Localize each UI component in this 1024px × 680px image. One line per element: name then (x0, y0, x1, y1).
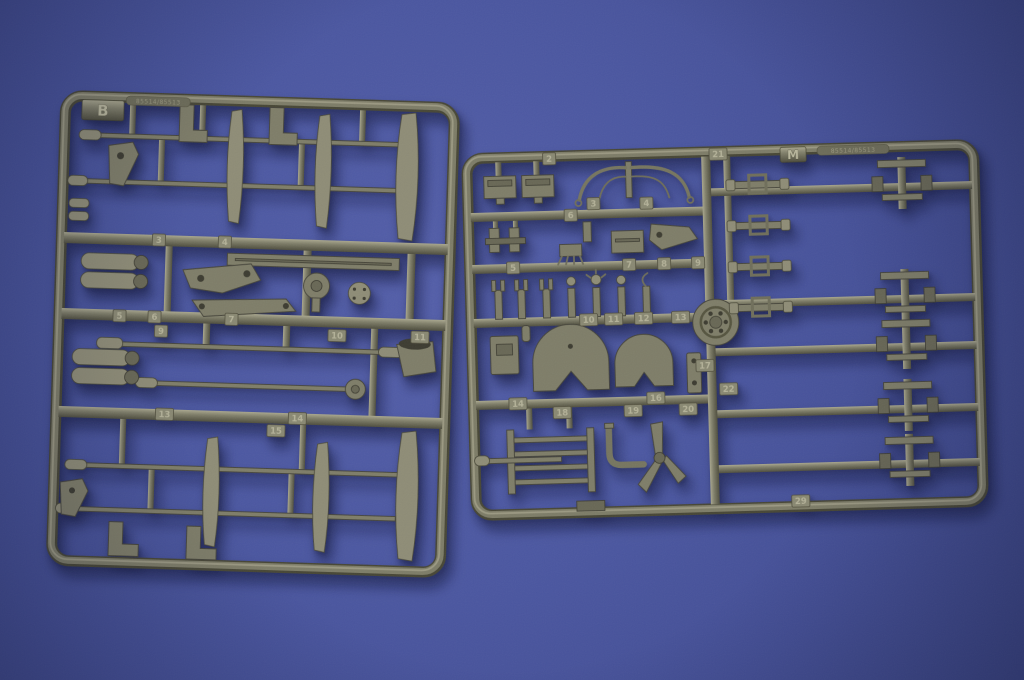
svg-text:19: 19 (627, 407, 639, 417)
linkage-rod-row (71, 328, 437, 402)
part-number-tag: 11 (604, 313, 622, 326)
part-number-tag: 2 (542, 153, 555, 166)
part-number-tag: 13 (671, 311, 689, 324)
part-number-tag: 6 (148, 311, 161, 324)
part-number-tag: 4 (218, 236, 231, 249)
sprue-b-letter-plate: B (82, 100, 125, 121)
mold-code-text: 85514/85513 (136, 98, 181, 106)
svg-text:15: 15 (270, 427, 282, 437)
part-number-tag: 15 (267, 424, 285, 437)
svg-text:6: 6 (568, 211, 574, 221)
part-number-tag: 13 (155, 408, 173, 421)
part-number-tag: 7 (225, 313, 238, 326)
svg-text:17: 17 (699, 362, 711, 372)
tripod-blade-part (637, 421, 687, 492)
part-number-tag: 14 (509, 398, 527, 411)
swing-arm-blade (394, 112, 420, 241)
recuperator-cylinders (80, 253, 148, 290)
plate-part (577, 500, 605, 511)
part-number-tag: 12 (634, 312, 652, 325)
svg-text:6: 6 (151, 313, 157, 323)
small-wheel-part (348, 282, 371, 305)
outrigger-fitting (877, 378, 938, 432)
grip-box-part (490, 336, 519, 375)
sprue-letter-b: B (97, 102, 109, 120)
svg-text:9: 9 (695, 259, 701, 269)
svg-text:4: 4 (643, 199, 649, 209)
svg-text:8: 8 (661, 260, 667, 270)
svg-text:10: 10 (331, 332, 343, 342)
part-number-tag: 4 (640, 197, 653, 210)
torsion-bar-row-top (66, 101, 420, 241)
svg-text:10: 10 (583, 316, 595, 326)
photo-scene: B 85514/85513 3456791011131415 (0, 0, 1024, 680)
outrigger-fitting (871, 156, 932, 210)
part-number-tag: 19 (624, 404, 642, 417)
part-number-tag: 10 (328, 329, 346, 342)
step-bracket (108, 522, 139, 557)
svg-text:18: 18 (556, 409, 568, 419)
svg-text:22: 22 (723, 385, 735, 395)
part-number-tag: 3 (152, 234, 165, 247)
svg-text:3: 3 (590, 200, 596, 210)
cradle-half-left (532, 323, 610, 391)
sprue-m-mold-code: 85514/85513 (817, 144, 889, 155)
part-number-tag: 14 (288, 412, 306, 425)
outrigger-fitting (876, 316, 937, 370)
svg-text:11: 11 (608, 315, 620, 325)
part-number-tag: 11 (411, 331, 429, 344)
link-part (727, 215, 790, 235)
svg-text:13: 13 (158, 410, 170, 420)
swing-arm-blade (311, 442, 330, 552)
svg-text:21: 21 (712, 150, 724, 160)
svg-text:3: 3 (156, 236, 162, 246)
recuperator-cylinders (71, 348, 139, 385)
part-number-tag: 16 (647, 392, 665, 405)
swing-arm-blade (313, 114, 333, 228)
swing-arm-blade (201, 437, 220, 547)
step-bracket (269, 107, 298, 145)
sprue-letter-m: M (787, 148, 799, 162)
fender-bracket (108, 141, 139, 186)
svg-text:7: 7 (228, 315, 234, 325)
torsion-bar-row-bottom (54, 420, 420, 566)
svg-text:14: 14 (291, 414, 303, 424)
svg-text:2: 2 (546, 155, 552, 165)
part-number-tag: 29 (792, 495, 810, 508)
side-bracket (687, 353, 702, 393)
small-pegs-row (491, 268, 650, 319)
part-number-tag: 9 (691, 257, 704, 270)
mold-code-text: 85514/85513 (831, 147, 876, 155)
gun-cradle-halves (490, 321, 702, 399)
swing-arm-blade (225, 109, 245, 223)
svg-text:14: 14 (512, 400, 524, 410)
svg-text:11: 11 (414, 333, 426, 343)
part-number-tag: 17 (696, 359, 714, 372)
bell-crank (182, 262, 261, 294)
svg-text:13: 13 (675, 313, 687, 323)
part-number-tag: 10 (579, 314, 597, 327)
elbow-pipe-part (605, 422, 644, 465)
svg-text:29: 29 (795, 497, 807, 507)
outrigger-fittings-column (871, 156, 940, 487)
part-number-tag: 6 (564, 209, 577, 222)
part-number-tag: 22 (719, 383, 737, 396)
box-parts-row (484, 175, 555, 205)
sprue-m: M 85514/85513 22134657891011121317221416… (461, 139, 989, 521)
part-number-tag: 20 (679, 403, 697, 416)
part-number-tag: 21 (709, 148, 727, 161)
svg-text:16: 16 (650, 394, 662, 404)
svg-text:20: 20 (682, 405, 694, 415)
svg-text:5: 5 (116, 312, 122, 322)
svg-text:9: 9 (158, 327, 164, 337)
part-number-tag: 7 (622, 258, 635, 271)
svg-text:12: 12 (638, 314, 650, 324)
part-number-tag: 9 (154, 325, 167, 338)
svg-text:5: 5 (510, 264, 516, 274)
outrigger-fitting (874, 268, 935, 322)
svg-text:7: 7 (626, 261, 632, 271)
sprue-b: B 85514/85513 3456791011131415 (46, 90, 461, 578)
link-part (728, 256, 791, 276)
bucket-part (396, 338, 437, 378)
cradle-half-right (614, 333, 673, 387)
swing-arm-blade (394, 431, 420, 562)
sprue-b-mold-code: 85514/85513 (126, 96, 190, 107)
part-number-tag: 5 (113, 310, 126, 323)
part-number-tag: 18 (553, 406, 571, 419)
outrigger-fitting (879, 433, 940, 487)
part-number-tag: 5 (507, 262, 520, 275)
part-number-tag: 3 (587, 197, 600, 210)
sprue-m-letter-plate: M (780, 147, 806, 163)
part-number-tag: 8 (657, 257, 670, 270)
svg-text:4: 4 (222, 238, 228, 248)
